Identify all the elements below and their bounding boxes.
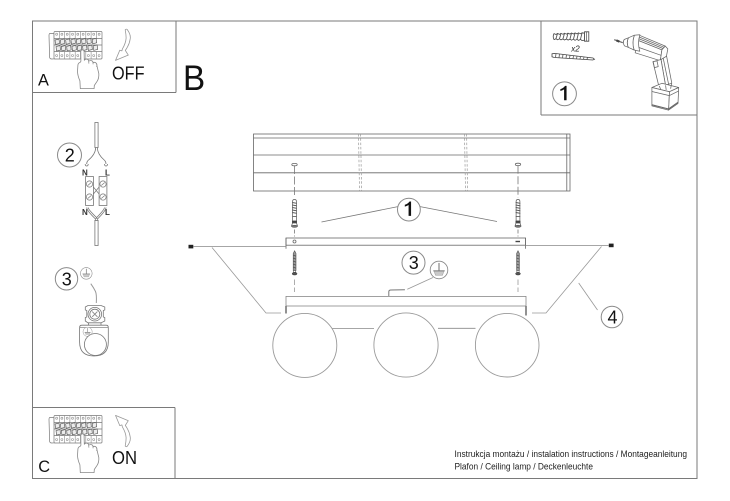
svg-text:ON: ON [112,448,137,468]
svg-text:3: 3 [409,253,419,273]
svg-text:Instrukcja montażu / instalati: Instrukcja montażu / instalation instruc… [455,449,688,460]
svg-text:2: 2 [65,146,75,166]
svg-text:4: 4 [608,308,618,328]
svg-text:x2: x2 [570,44,580,53]
svg-text:3: 3 [62,269,72,289]
svg-text:C: C [38,458,50,476]
svg-text:Plafon / Ceiling lamp / Decken: Plafon / Ceiling lamp / Deckenleuchte [455,461,594,472]
svg-text:A: A [38,72,49,90]
svg-text:OFF: OFF [112,64,145,84]
svg-text:B: B [183,59,205,98]
